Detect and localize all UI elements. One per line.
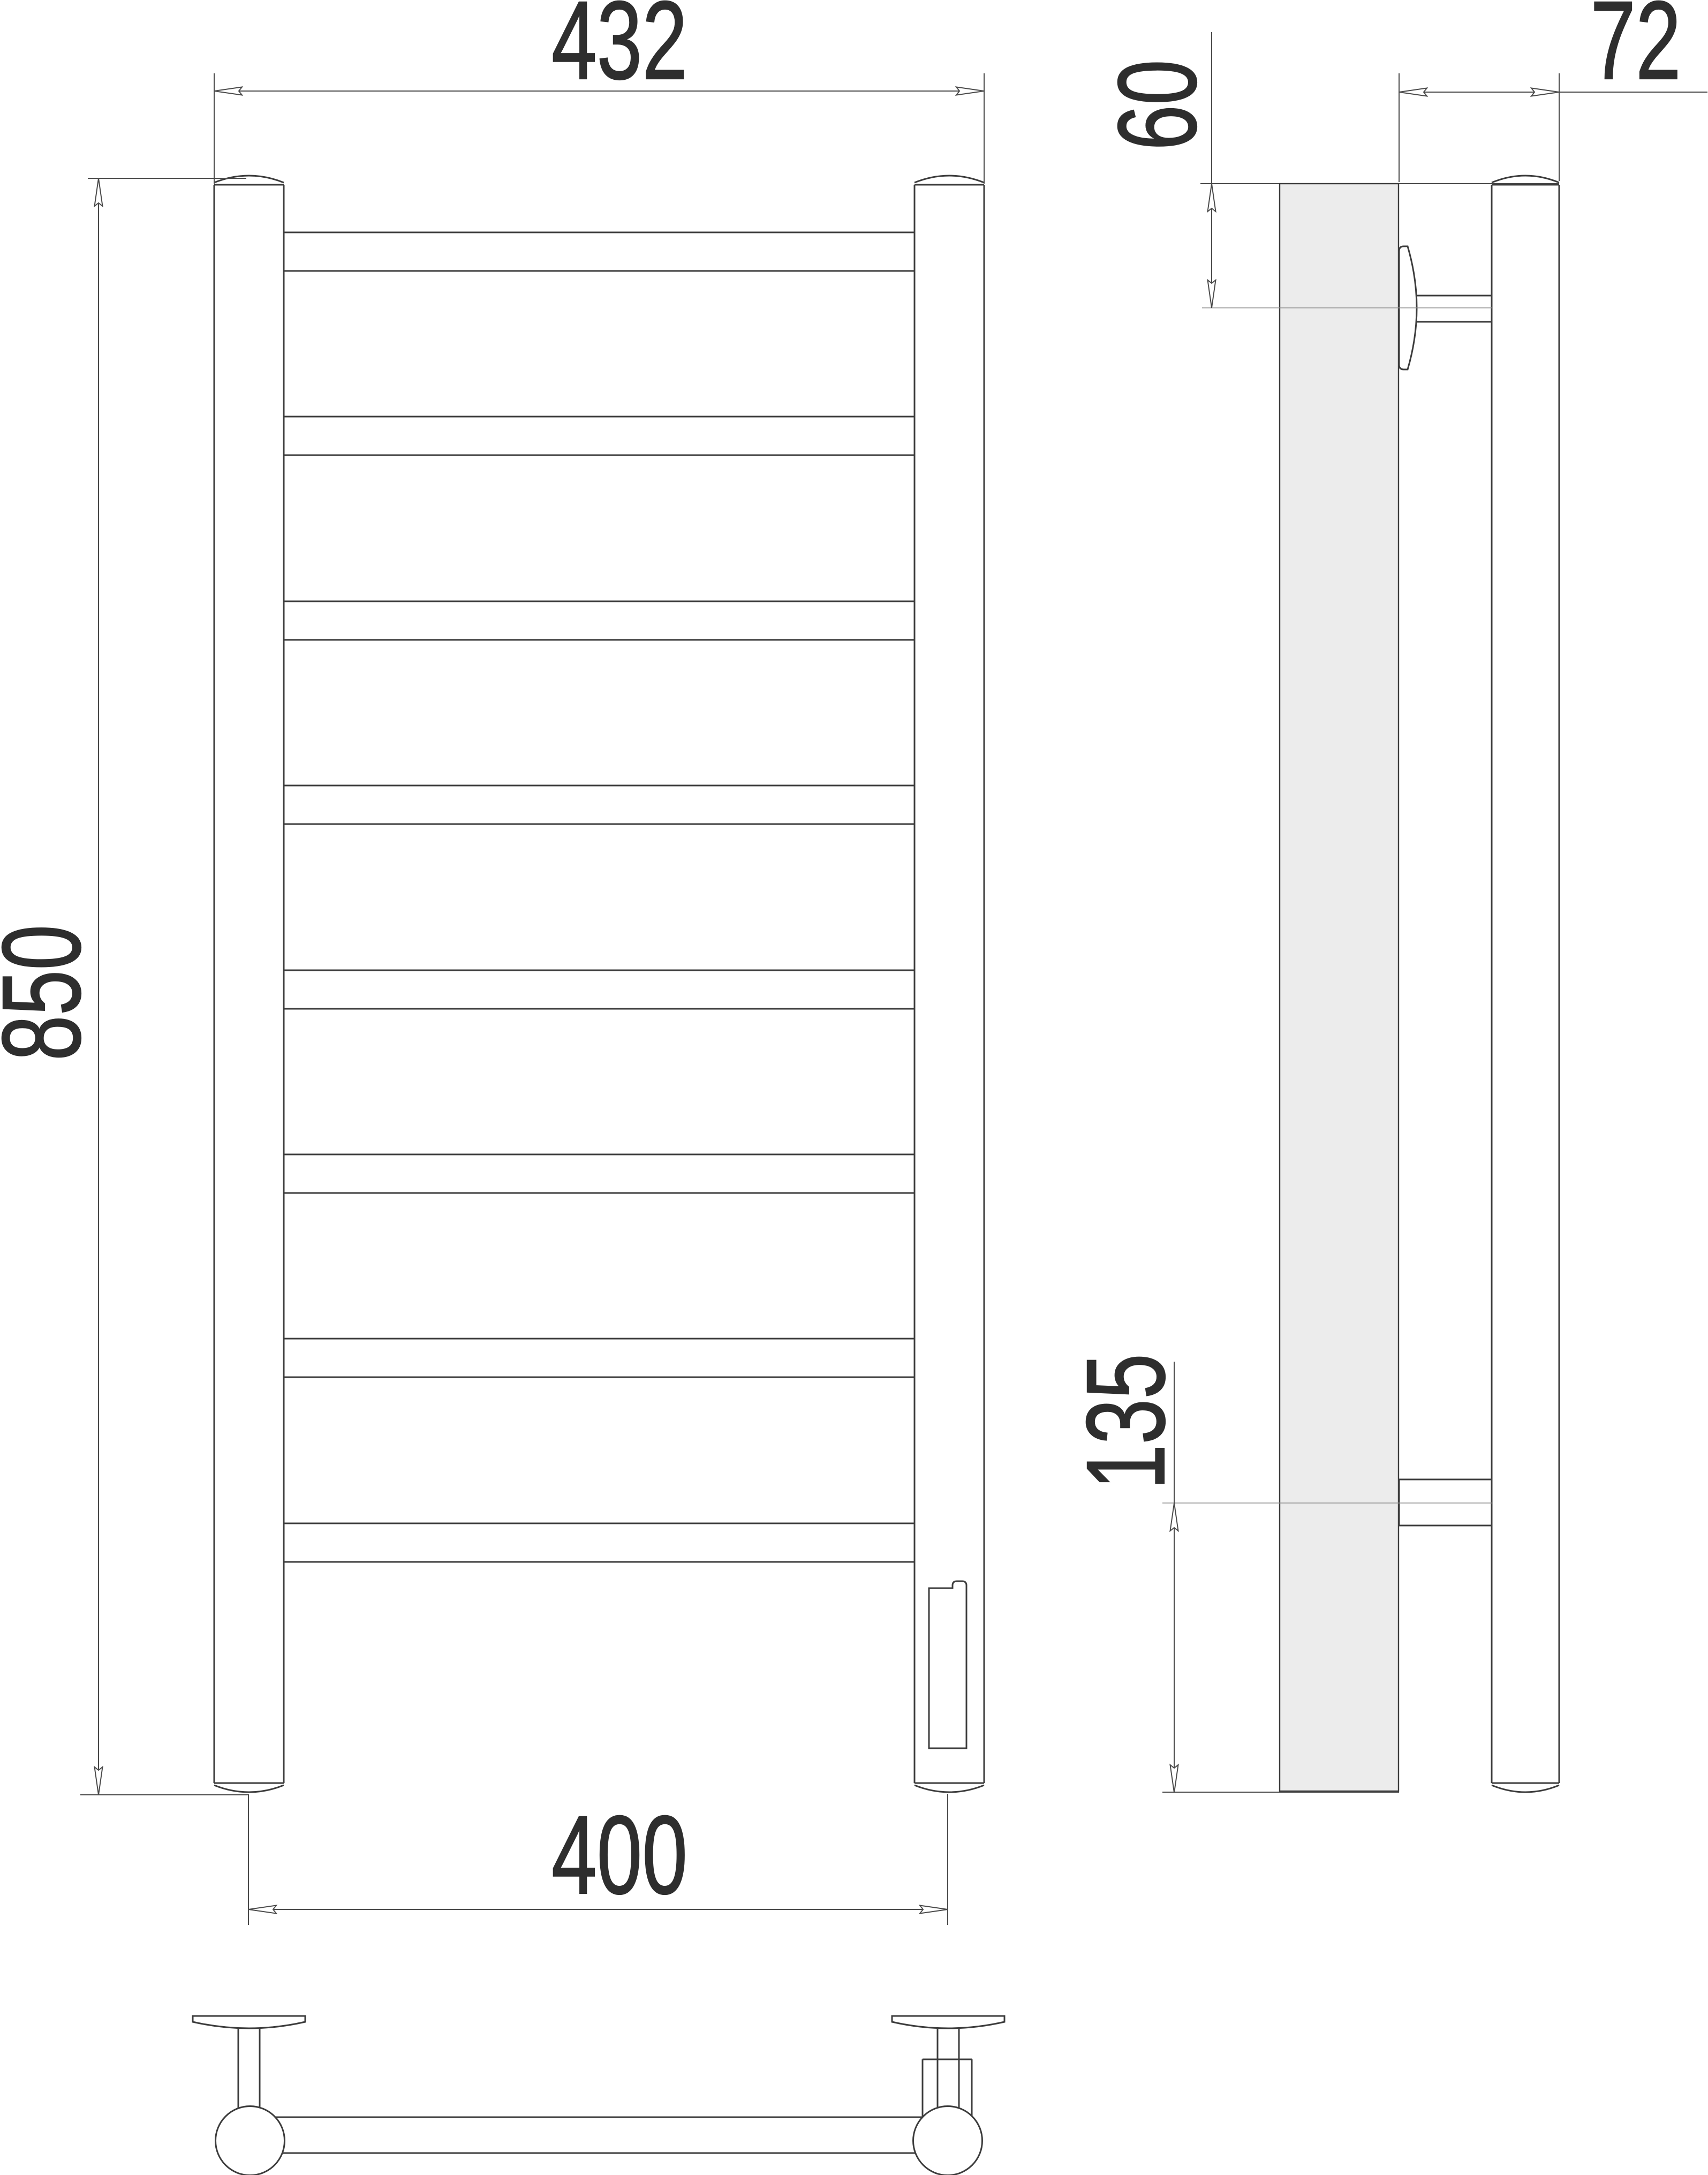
svg-text:72: 72: [1590, 0, 1681, 103]
svg-text:135: 135: [1063, 1354, 1188, 1490]
svg-text:432: 432: [551, 0, 687, 103]
svg-text:400: 400: [551, 1793, 687, 1917]
svg-text:850: 850: [0, 925, 104, 1061]
svg-text:60: 60: [1095, 59, 1220, 150]
